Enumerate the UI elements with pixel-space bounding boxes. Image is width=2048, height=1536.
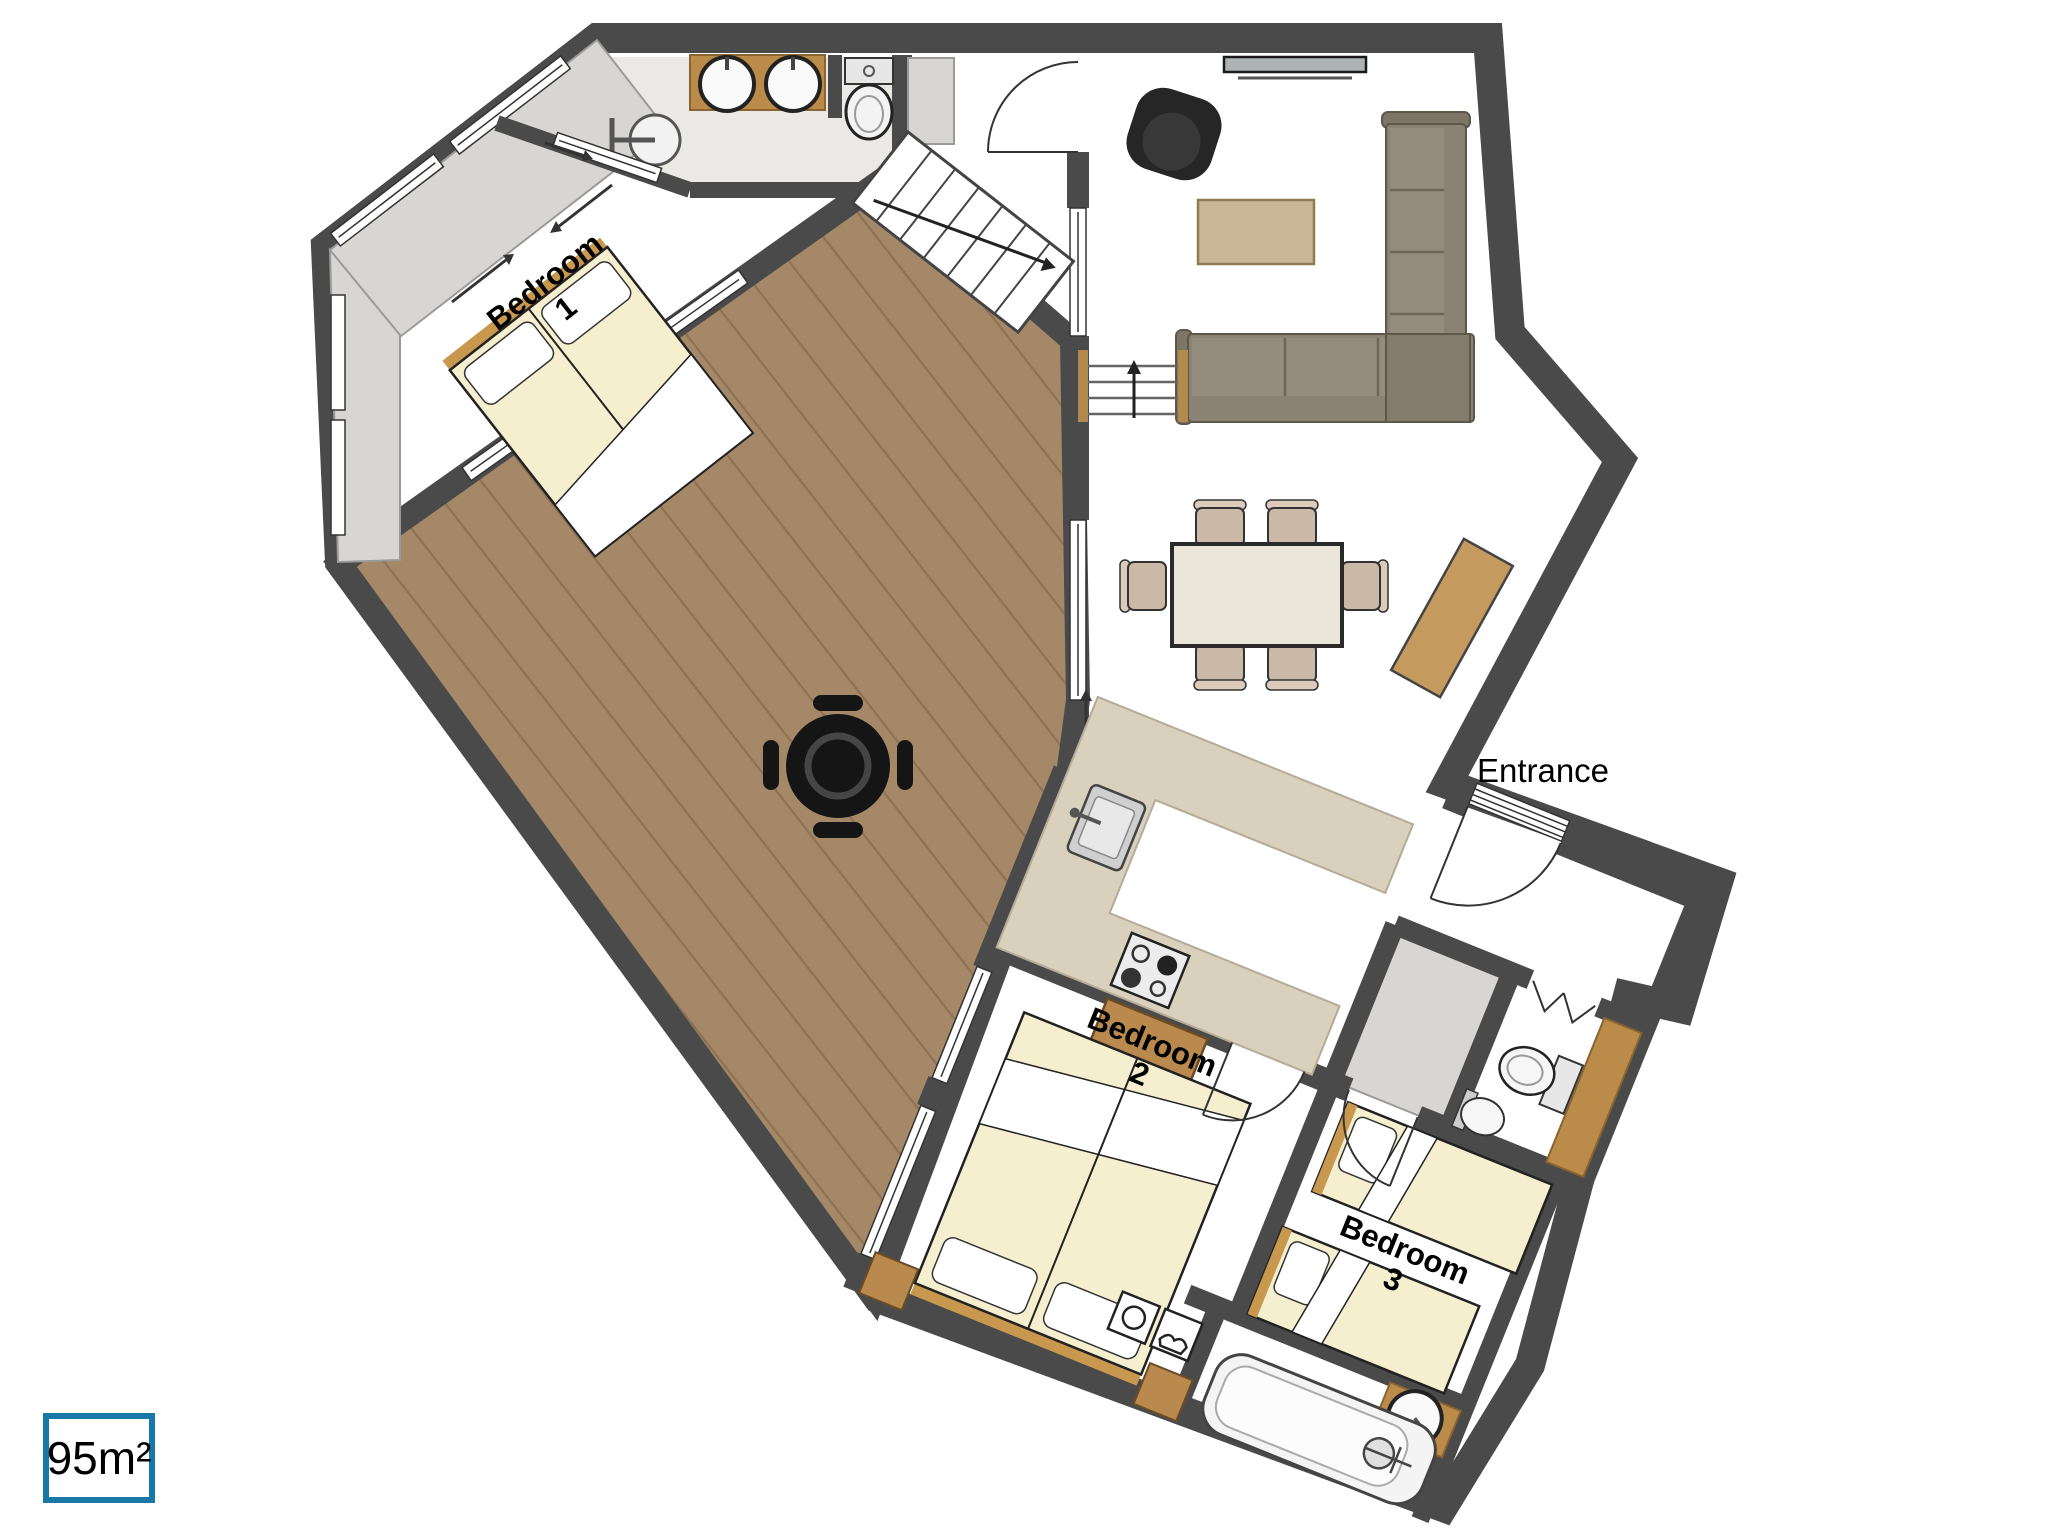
- toilet-icon: [845, 58, 893, 139]
- coffee-table-icon: [1198, 200, 1314, 264]
- floor-plan-page: Bedroom 2 Bedroom 3: [0, 0, 2048, 1536]
- area-badge: 95m²: [46, 1416, 152, 1500]
- area-label: 95m²: [47, 1432, 152, 1484]
- entrance-label: Entrance: [1477, 752, 1609, 789]
- dining-table-icon: [1172, 544, 1342, 646]
- hall-closet: [908, 58, 954, 144]
- floor-plan-canvas: Bedroom 2 Bedroom 3: [0, 0, 2048, 1536]
